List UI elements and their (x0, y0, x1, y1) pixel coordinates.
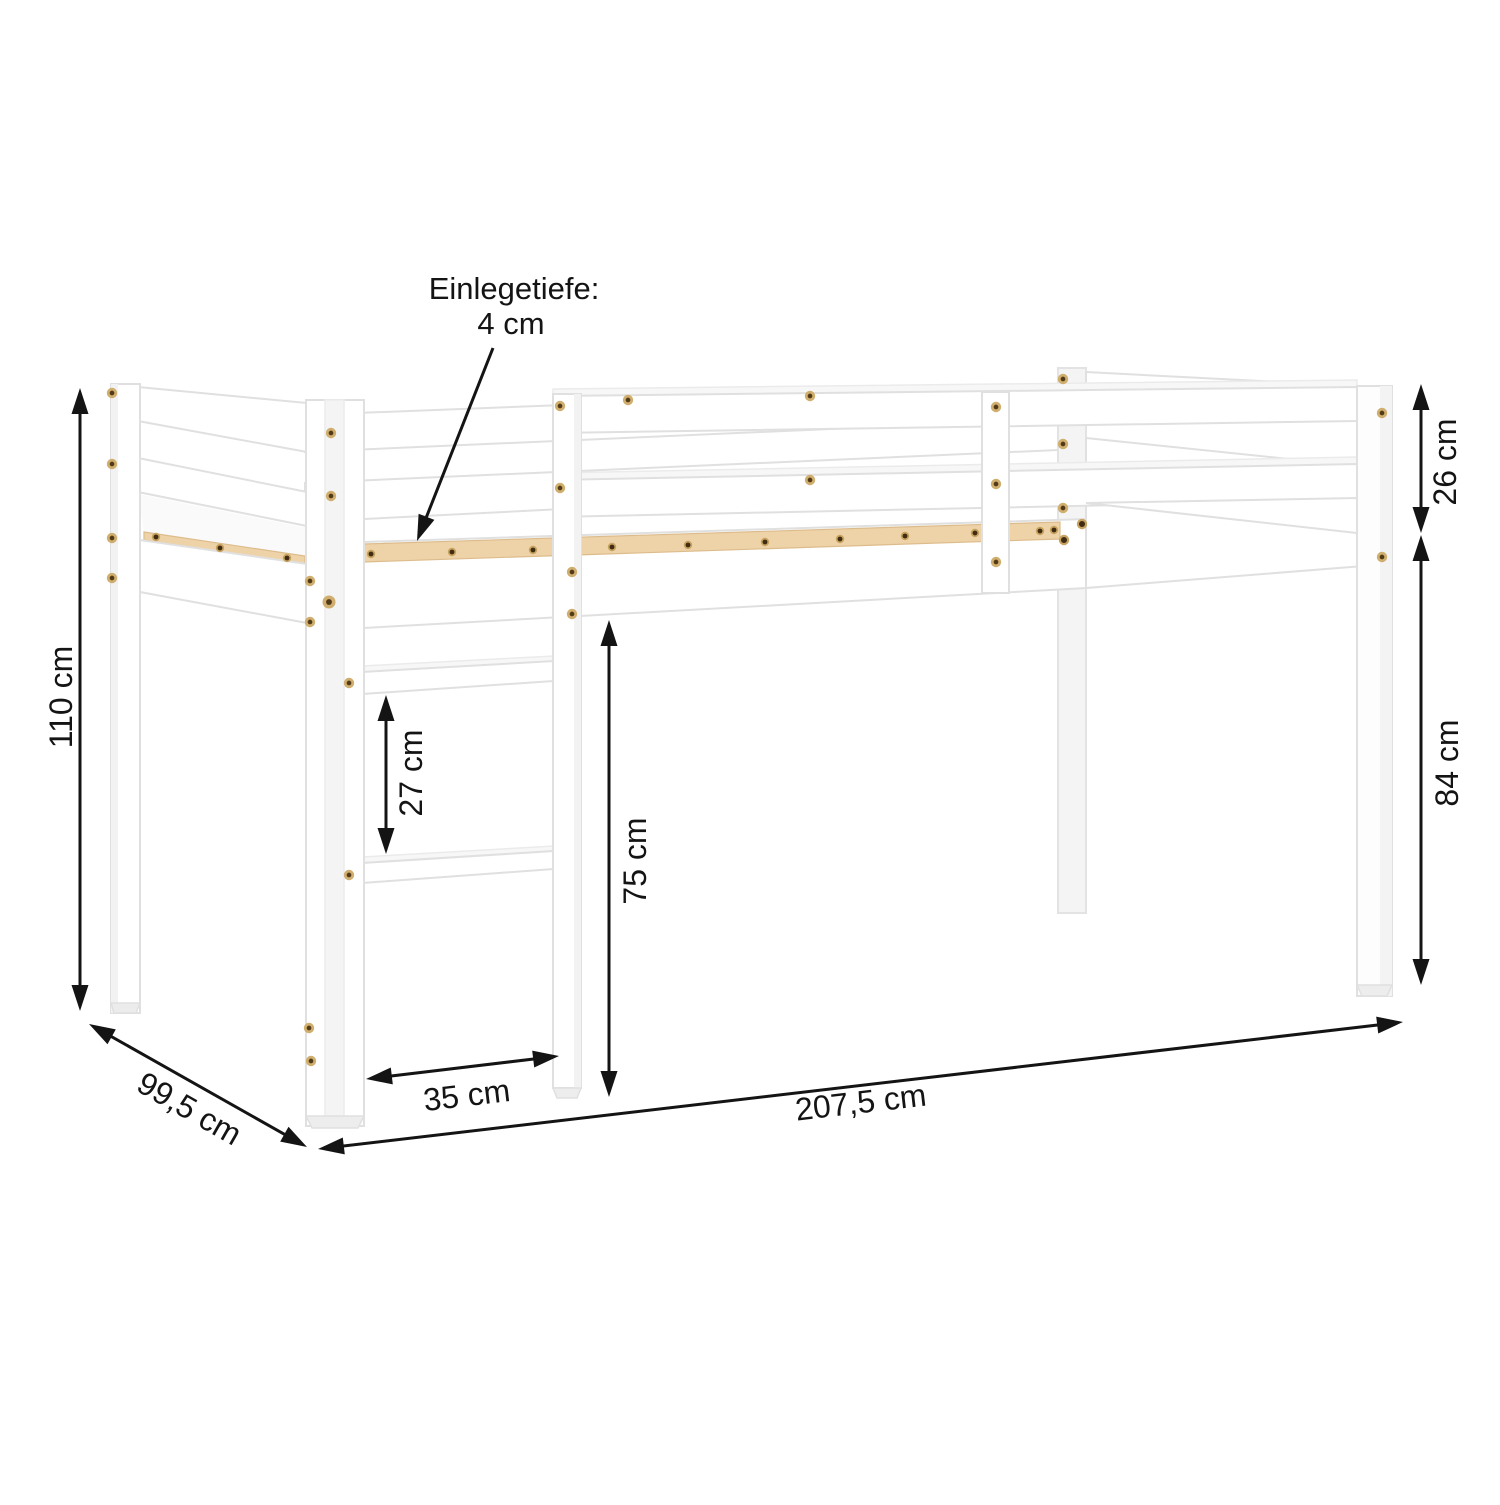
svg-text:4 cm: 4 cm (477, 306, 544, 341)
svg-text:Einlegetiefe:: Einlegetiefe: (429, 271, 600, 306)
svg-text:26 cm: 26 cm (1427, 418, 1463, 505)
svg-text:75 cm: 75 cm (617, 817, 653, 904)
svg-text:84 cm: 84 cm (1429, 719, 1465, 806)
svg-text:27 cm: 27 cm (393, 729, 429, 816)
svg-text:110 cm: 110 cm (43, 646, 79, 749)
